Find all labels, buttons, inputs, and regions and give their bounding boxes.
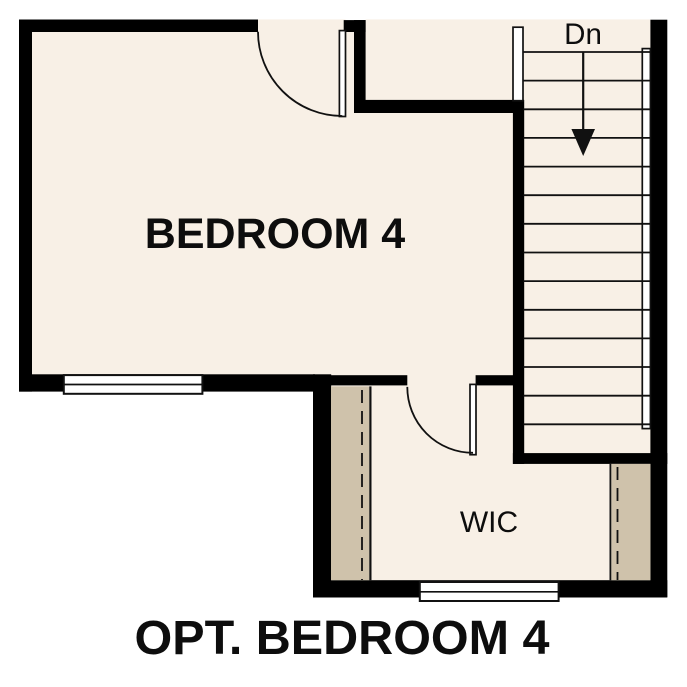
svg-text:BEDROOM 4: BEDROOM 4 xyxy=(145,210,406,258)
svg-text:Dn: Dn xyxy=(564,18,602,51)
svg-text:WIC: WIC xyxy=(460,506,518,539)
svg-text:OPT. BEDROOM 4: OPT. BEDROOM 4 xyxy=(135,611,550,665)
